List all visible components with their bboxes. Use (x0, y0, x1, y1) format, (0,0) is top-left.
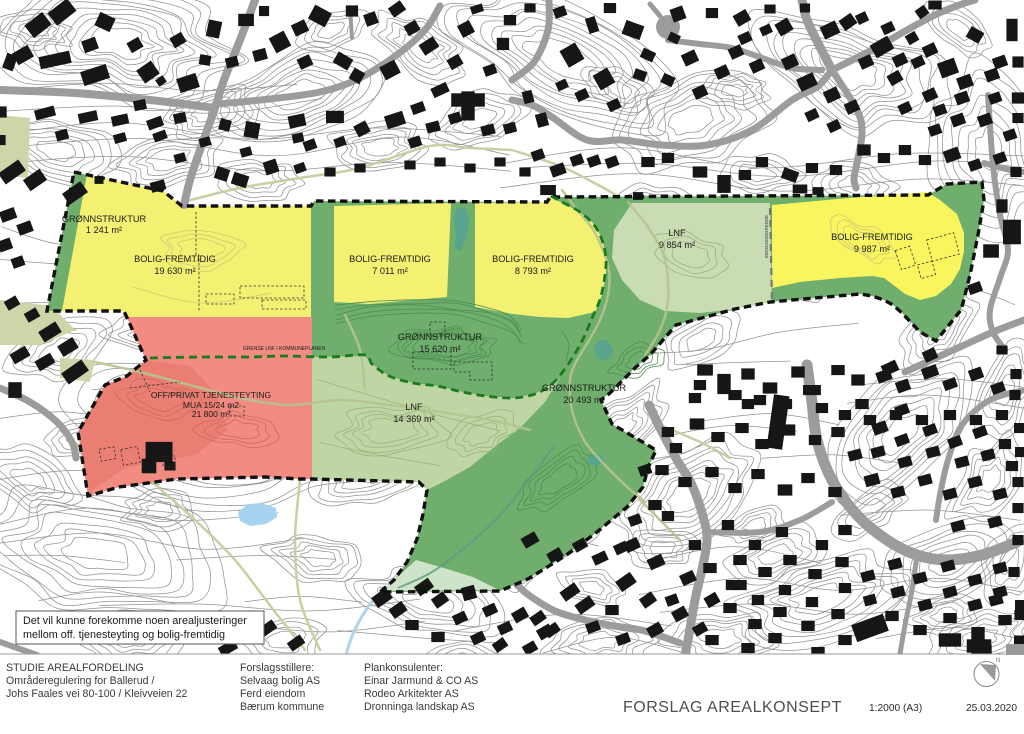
svg-text:25.03.2020: 25.03.2020 (966, 703, 1017, 714)
svg-text:1 241 m²: 1 241 m² (86, 225, 122, 235)
svg-text:Einar Jarmund & CO AS: Einar Jarmund & CO AS (364, 675, 478, 687)
svg-text:15 620 m²: 15 620 m² (419, 344, 460, 354)
svg-text:21 800 m²: 21 800 m² (192, 409, 230, 419)
svg-text:8 793 m²: 8 793 m² (515, 266, 551, 276)
svg-text:GRENSE LNF I KOMMUNEPLANEN: GRENSE LNF I KOMMUNEPLANEN (243, 346, 326, 352)
svg-text:FORSLAG AREALKONSEPT: FORSLAG AREALKONSEPT (623, 699, 842, 716)
svg-text:mellom off. tjenesteyting og b: mellom off. tjenesteyting og bolig-fremt… (23, 629, 225, 641)
svg-text:14 369 m²: 14 369 m² (393, 414, 434, 424)
svg-text:1:2000 (A3): 1:2000 (A3) (869, 703, 922, 714)
svg-text:BOLIG-FREMTIDIG: BOLIG-FREMTIDIG (492, 254, 574, 264)
svg-text:Plankonsulenter:: Plankonsulenter: (364, 662, 443, 674)
svg-text:BOLIG-FREMTIDIG: BOLIG-FREMTIDIG (134, 254, 216, 264)
svg-text:Forslagsstillere:: Forslagsstillere: (240, 662, 314, 674)
svg-text:Det vil kunne forekomme noen a: Det vil kunne forekomme noen arealjuster… (23, 615, 247, 627)
svg-text:GRØNNSTRUKTUR: GRØNNSTRUKTUR (398, 332, 483, 342)
svg-text:9 854 m²: 9 854 m² (659, 240, 695, 250)
svg-text:Ferd eiendom: Ferd eiendom (240, 688, 306, 700)
svg-text:Rodeo Arkitekter AS: Rodeo Arkitekter AS (364, 688, 459, 700)
svg-text:OFF/PRIVAT TJENESTEYTING: OFF/PRIVAT TJENESTEYTING (151, 390, 271, 400)
svg-text:STUDIE AREALFORDELING: STUDIE AREALFORDELING (6, 662, 144, 674)
svg-text:GRØNNSTRUKTUR: GRØNNSTRUKTUR (542, 383, 627, 393)
svg-text:20 493 m²: 20 493 m² (563, 395, 604, 405)
svg-text:LNF: LNF (405, 402, 423, 412)
svg-text:N: N (996, 658, 1000, 664)
svg-text:Områderegulering for Ballerud: Områderegulering for Ballerud / (6, 675, 154, 687)
svg-text:GRØNNSTRUKTUR: GRØNNSTRUKTUR (62, 214, 147, 224)
svg-text:7 011 m²: 7 011 m² (372, 266, 408, 276)
svg-text:BOLIG-FREMTIDIG: BOLIG-FREMTIDIG (349, 254, 431, 264)
svg-text:Dronninga landskap AS: Dronninga landskap AS (364, 701, 475, 713)
svg-text:Selvaag bolig AS: Selvaag bolig AS (240, 675, 320, 687)
svg-text:Bærum kommune: Bærum kommune (240, 701, 324, 713)
svg-text:LNF: LNF (668, 228, 686, 238)
svg-text:19 630 m²: 19 630 m² (154, 266, 195, 276)
svg-text:EIENDOMSGRENSE: EIENDOMSGRENSE (764, 215, 769, 258)
svg-text:9 987 m²: 9 987 m² (854, 244, 890, 254)
svg-text:Johs Faales vei 80-100 / Kleiv: Johs Faales vei 80-100 / Kleivveien 22 (6, 688, 187, 700)
svg-text:BOLIG-FREMTIDIG: BOLIG-FREMTIDIG (831, 232, 913, 242)
